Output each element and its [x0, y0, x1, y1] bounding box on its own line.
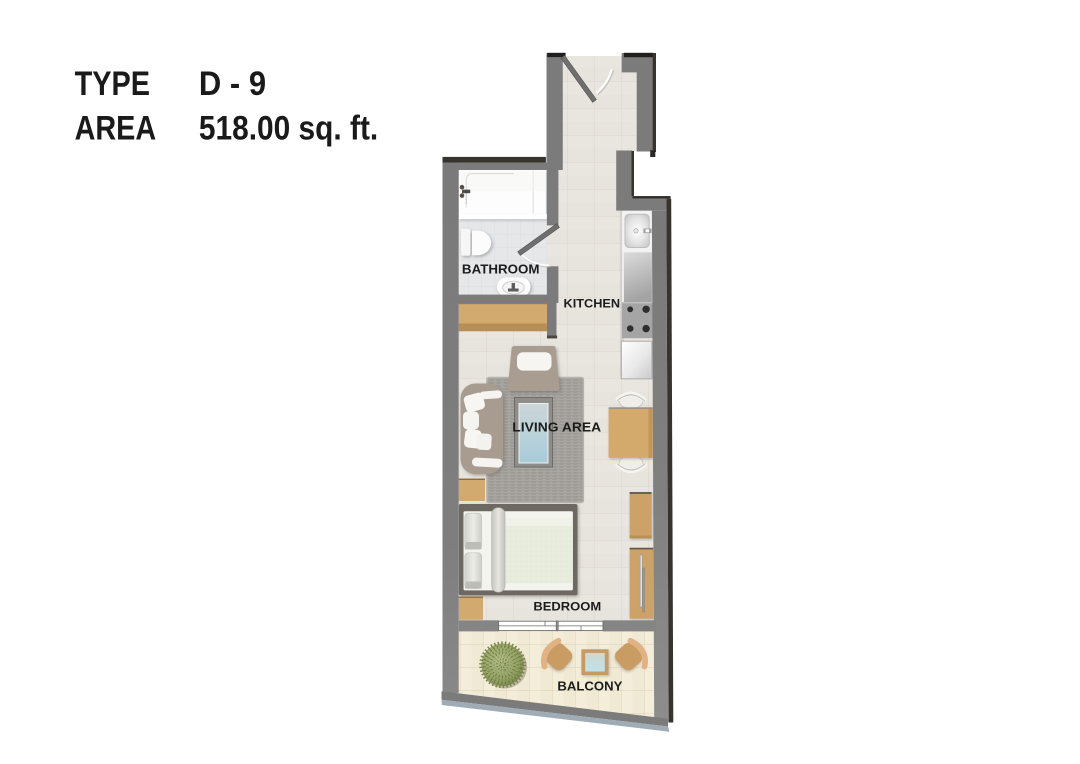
- svg-text:LIVING AREA: LIVING AREA: [512, 421, 601, 435]
- svg-text:BEDROOM: BEDROOM: [533, 600, 601, 614]
- svg-text:BATHROOM: BATHROOM: [462, 262, 540, 277]
- svg-text:AREA: AREA: [75, 110, 157, 148]
- svg-text:D - 9: D - 9: [199, 65, 266, 103]
- svg-text:KITCHEN: KITCHEN: [564, 297, 621, 311]
- svg-text:TYPE: TYPE: [75, 65, 151, 103]
- svg-text:518.00 sq. ft.: 518.00 sq. ft.: [199, 110, 378, 148]
- svg-text:BALCONY: BALCONY: [557, 679, 622, 694]
